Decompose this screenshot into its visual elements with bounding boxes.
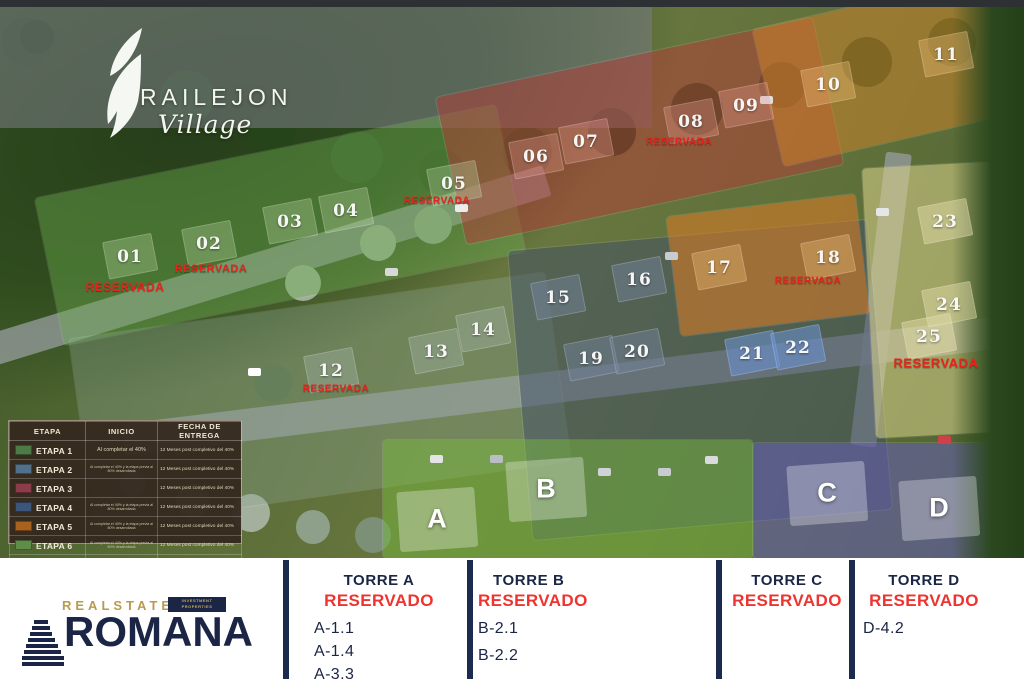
lot-11: 11 xyxy=(933,45,959,65)
reserved-label: RESERVADA xyxy=(894,356,979,371)
etapa-entrega: 12 Meses post completivo del 40% xyxy=(158,479,242,498)
logo-title: RAILEJON xyxy=(140,84,292,111)
etapa-color-swatch xyxy=(15,445,32,455)
etapa-color-swatch xyxy=(15,483,32,493)
building-letter-A: A xyxy=(427,504,447,535)
site-plan-map: 0102030405060708091011121314151617181920… xyxy=(0,0,1024,558)
logo-subtitle: Village xyxy=(158,110,252,139)
lot-06: 06 xyxy=(523,147,549,167)
etapa-color-swatch xyxy=(15,540,32,550)
reserved-label: RESERVADA xyxy=(303,384,369,395)
etapa-label: ETAPA 3 xyxy=(36,484,72,494)
etapa-label: ETAPA 4 xyxy=(36,503,72,513)
lot-24: 24 xyxy=(936,295,962,315)
lot-16: 16 xyxy=(626,270,652,290)
legend-row: ETAPA 6Al completar el 40% y la etapa pr… xyxy=(10,536,242,555)
lot-03: 03 xyxy=(277,212,303,232)
romana-realstate-logo: REALSTATE INVESTMENT PROPERTIES ROMANA xyxy=(18,592,278,678)
lot-20: 20 xyxy=(624,342,650,362)
lot-08: 08 xyxy=(678,112,704,132)
lot-19: 19 xyxy=(578,349,604,369)
lot-01: 01 xyxy=(117,247,143,267)
building-icon xyxy=(22,620,64,672)
legend-header-inicio: INICIO xyxy=(86,422,158,441)
lot-21: 21 xyxy=(739,344,765,364)
building-letter-B: B xyxy=(536,474,556,505)
footer-bar: REALSTATE INVESTMENT PROPERTIES ROMANA T… xyxy=(0,558,1024,685)
etapa-inicio: Al completar el 40% y la etapa previa al… xyxy=(86,536,158,555)
lot-12: 12 xyxy=(318,361,344,381)
lot-25: 25 xyxy=(916,327,942,347)
legend-header-etapa: ETAPA xyxy=(10,422,86,441)
top-border-strip xyxy=(0,0,1024,7)
etapa-entrega: 12 Meses post completivo del 40% xyxy=(158,517,242,536)
tower-unit: A-1.4 xyxy=(314,643,468,661)
etapa-entrega: 12 Meses post completivo del 40% xyxy=(158,536,242,555)
legend-row: ETAPA 5Al completar el 40% y la etapa pr… xyxy=(10,517,242,536)
lot-18: 18 xyxy=(815,248,841,268)
lot-23: 23 xyxy=(932,212,958,232)
reserved-label: RESERVADA xyxy=(404,196,470,207)
etapa-entrega: 12 Meses post completivo del 40% xyxy=(158,498,242,517)
tower-a-units: A-1.1A-1.4A-3.3 xyxy=(290,620,468,684)
etapa-color-swatch xyxy=(15,464,32,474)
reserved-label: RESERVADA xyxy=(175,263,248,275)
building-letter-C: C xyxy=(817,478,837,509)
lot-07: 07 xyxy=(573,132,599,152)
divider-bar xyxy=(283,560,289,679)
reserved-label: RESERVADA xyxy=(86,280,165,294)
tower-d-units: D-4.2 xyxy=(855,620,993,638)
tower-unit: B-2.2 xyxy=(478,647,654,665)
tower-c-status: RESERVADO xyxy=(724,591,850,611)
building-letter-D: D xyxy=(929,493,949,524)
etapa-inicio: Al completar el 40% y la etapa previa al… xyxy=(86,498,158,517)
tower-unit: A-3.3 xyxy=(314,666,468,684)
tower-b-title: TORRE B xyxy=(474,572,654,589)
etapa-label: ETAPA 6 xyxy=(36,541,72,551)
lot-10: 10 xyxy=(815,75,841,95)
tower-c-panel: TORRE C RESERVADO xyxy=(724,558,850,685)
reserved-label: RESERVADA xyxy=(646,137,712,148)
tower-b-status: RESERVADO xyxy=(474,591,654,611)
etapa-color-swatch xyxy=(15,521,32,531)
etapa-color-swatch xyxy=(15,502,32,512)
tower-d-title: TORRE D xyxy=(855,572,993,589)
etapas-legend-table: ETAPA INICIO FECHA DE ENTREGA ETAPA 1Al … xyxy=(8,420,242,544)
etapa-label: ETAPA 5 xyxy=(36,522,72,532)
lot-22: 22 xyxy=(785,338,811,358)
tower-a-title: TORRE A xyxy=(290,572,468,589)
etapa-entrega: 12 Meses post completivo del 40% xyxy=(158,441,242,460)
etapa-entrega: 12 Meses post completivo del 40% xyxy=(158,460,242,479)
lot-15: 15 xyxy=(545,288,571,308)
tower-unit: A-1.1 xyxy=(314,620,468,638)
etapa-inicio: Al completar el 40% y la etapa previa al… xyxy=(86,460,158,479)
tower-unit: B-2.1 xyxy=(478,620,654,638)
romana-wordmark: ROMANA xyxy=(64,608,253,656)
tower-d-panel: TORRE D RESERVADO D-4.2 xyxy=(855,558,993,685)
lot-17: 17 xyxy=(706,258,732,278)
lot-02: 02 xyxy=(196,234,222,254)
lot-04: 04 xyxy=(333,201,359,221)
legend-row: ETAPA 2Al completar el 40% y la etapa pr… xyxy=(10,460,242,479)
railejon-village-logo: RAILEJON Village xyxy=(96,26,316,146)
lot-14: 14 xyxy=(470,320,496,340)
etapa-label: ETAPA 2 xyxy=(36,465,72,475)
lot-05: 05 xyxy=(441,174,467,194)
tower-b-panel: TORRE B RESERVADO B-2.1B-2.2 xyxy=(474,558,654,685)
legend-row: ETAPA 312 Meses post completivo del 40% xyxy=(10,479,242,498)
tower-a-panel: TORRE A RESERVADO A-1.1A-1.4A-3.3 xyxy=(290,558,468,685)
tower-unit: D-4.2 xyxy=(863,620,993,638)
legend-row: ETAPA 4Al completar el 40% y la etapa pr… xyxy=(10,498,242,517)
legend-header-fecha: FECHA DE ENTREGA xyxy=(158,422,242,441)
lot-09: 09 xyxy=(733,96,759,116)
etapa-inicio xyxy=(86,479,158,498)
etapa-inicio: Al completar el 40% y la etapa previa al… xyxy=(86,517,158,536)
zone-etapa-orange-top xyxy=(752,0,1024,166)
divider-bar xyxy=(716,560,722,679)
etapa-label: ETAPA 1 xyxy=(36,446,72,456)
tower-c-title: TORRE C xyxy=(724,572,850,589)
tower-d-status: RESERVADO xyxy=(855,591,993,611)
tower-b-units: B-2.1B-2.2 xyxy=(474,620,654,665)
etapa-inicio: Al completar el 40% xyxy=(86,441,158,460)
tower-a-status: RESERVADO xyxy=(290,591,468,611)
lot-13: 13 xyxy=(423,342,449,362)
reserved-label: RESERVADA xyxy=(775,276,841,287)
legend-row: ETAPA 1Al completar el 40%12 Meses post … xyxy=(10,441,242,460)
